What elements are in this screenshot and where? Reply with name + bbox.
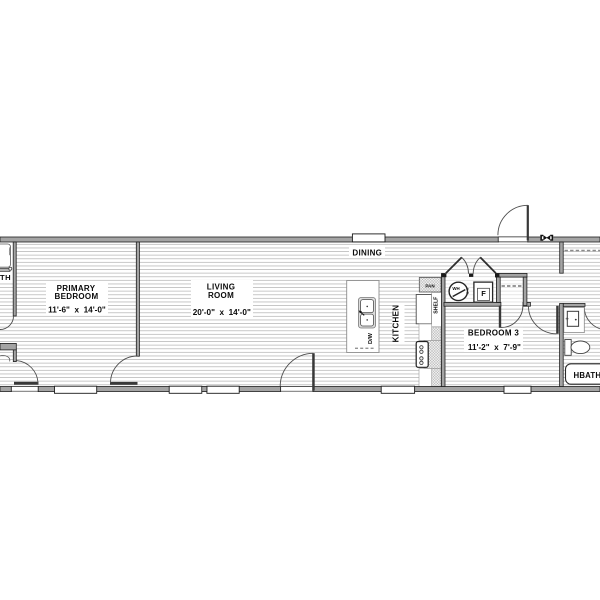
svg-text:D/W: D/W [368,332,374,344]
svg-text:HBATH: HBATH [574,371,600,380]
svg-text:11'-6" x 14'-0": 11'-6" x 14'-0" [48,306,106,315]
svg-text:BEDROOM 3: BEDROOM 3 [468,329,519,338]
svg-text:20'-0" x 14'-0": 20'-0" x 14'-0" [193,308,251,317]
svg-text:11'-2" x 7'-9": 11'-2" x 7'-9" [468,343,521,352]
svg-text:DINING: DINING [352,248,382,257]
svg-text:F: F [481,289,486,298]
svg-text:SHELF: SHELF [433,297,439,314]
svg-text:TH: TH [0,273,11,282]
svg-text:PAN: PAN [425,283,435,288]
svg-text:ROOM: ROOM [208,291,234,300]
svg-text:KITCHEN: KITCHEN [392,305,401,343]
svg-text:BEDROOM: BEDROOM [55,292,99,301]
svg-text:WH: WH [452,286,459,291]
svg-text:LIVING: LIVING [207,282,235,291]
